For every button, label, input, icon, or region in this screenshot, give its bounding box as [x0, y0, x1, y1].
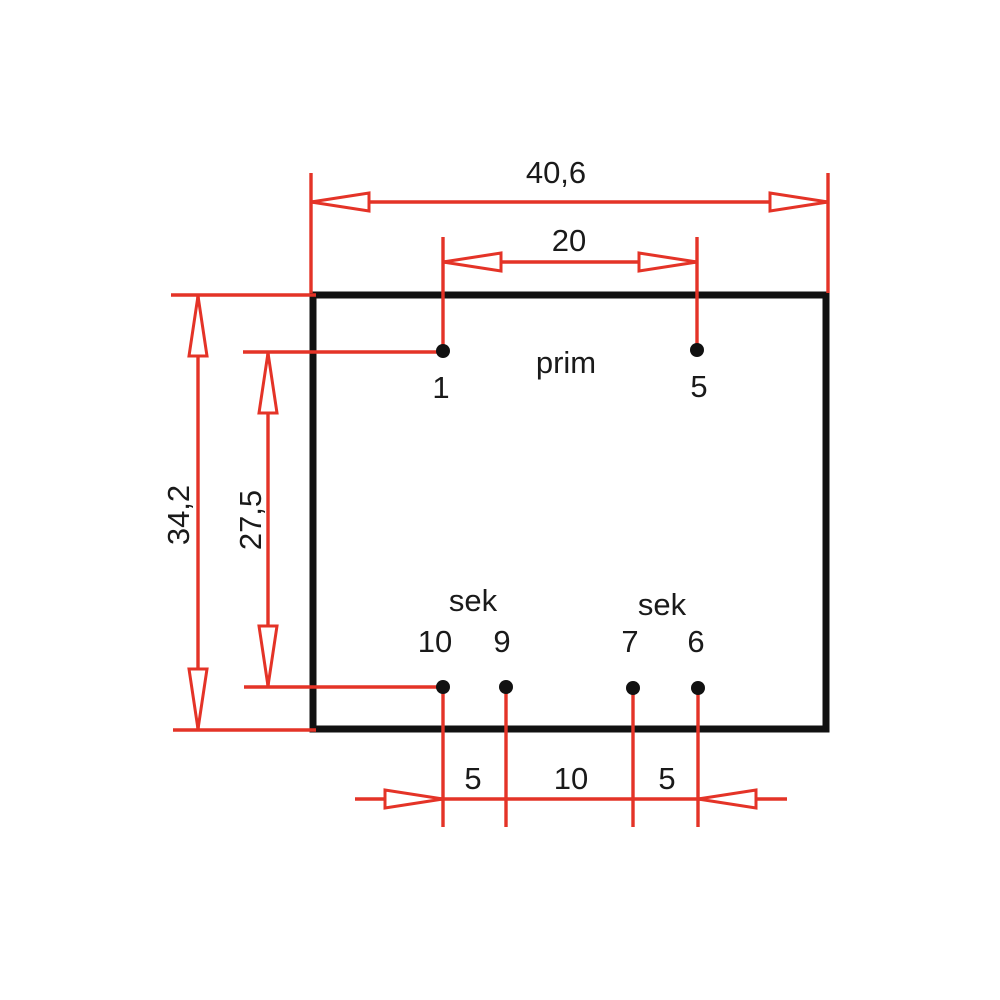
dim-label-overall-height: 34,2 — [161, 485, 196, 545]
arrow-up-icon — [259, 353, 277, 413]
pin-dot-9 — [499, 680, 513, 694]
pin-dot-5 — [690, 343, 704, 357]
pin-dot-7 — [626, 681, 640, 695]
pin-dot-1 — [436, 344, 450, 358]
arrow-left-icon — [311, 193, 369, 211]
winding-label-secondary-left: sek — [449, 583, 498, 618]
dim-label-overall-width: 40,6 — [526, 155, 586, 190]
pin-dot-10 — [436, 680, 450, 694]
dim-label-pinrow-spacing: 27,5 — [233, 490, 268, 550]
pin-label-10: 10 — [418, 624, 452, 659]
dim-label-primary-spacing: 20 — [552, 223, 586, 258]
dim-label-secondary-left: 5 — [464, 761, 481, 796]
pin-label-7: 7 — [621, 624, 638, 659]
winding-label-primary: prim — [536, 345, 596, 380]
pin-label-5: 5 — [690, 369, 707, 404]
arrow-right-icon — [385, 790, 443, 808]
arrow-up-icon — [189, 296, 207, 356]
arrow-down-icon — [259, 626, 277, 686]
pin-dot-6 — [691, 681, 705, 695]
arrow-right-icon — [770, 193, 828, 211]
dim-label-secondary-right: 5 — [658, 761, 675, 796]
dim-label-secondary-middle: 10 — [554, 761, 588, 796]
drawing-canvas: 40,6 20 34,2 27,5 prim 1 5 sek sek 10 9 … — [0, 0, 1000, 1000]
arrow-down-icon — [189, 669, 207, 729]
arrow-right-icon — [639, 253, 697, 271]
pin-label-1: 1 — [432, 370, 449, 405]
dimension-drawing-svg: 40,6 20 34,2 27,5 prim 1 5 sek sek 10 9 … — [0, 0, 1000, 1000]
pin-label-6: 6 — [687, 624, 704, 659]
arrow-left-icon — [443, 253, 501, 271]
arrow-left-icon — [698, 790, 756, 808]
winding-label-secondary-right: sek — [638, 587, 687, 622]
pin-label-9: 9 — [493, 624, 510, 659]
